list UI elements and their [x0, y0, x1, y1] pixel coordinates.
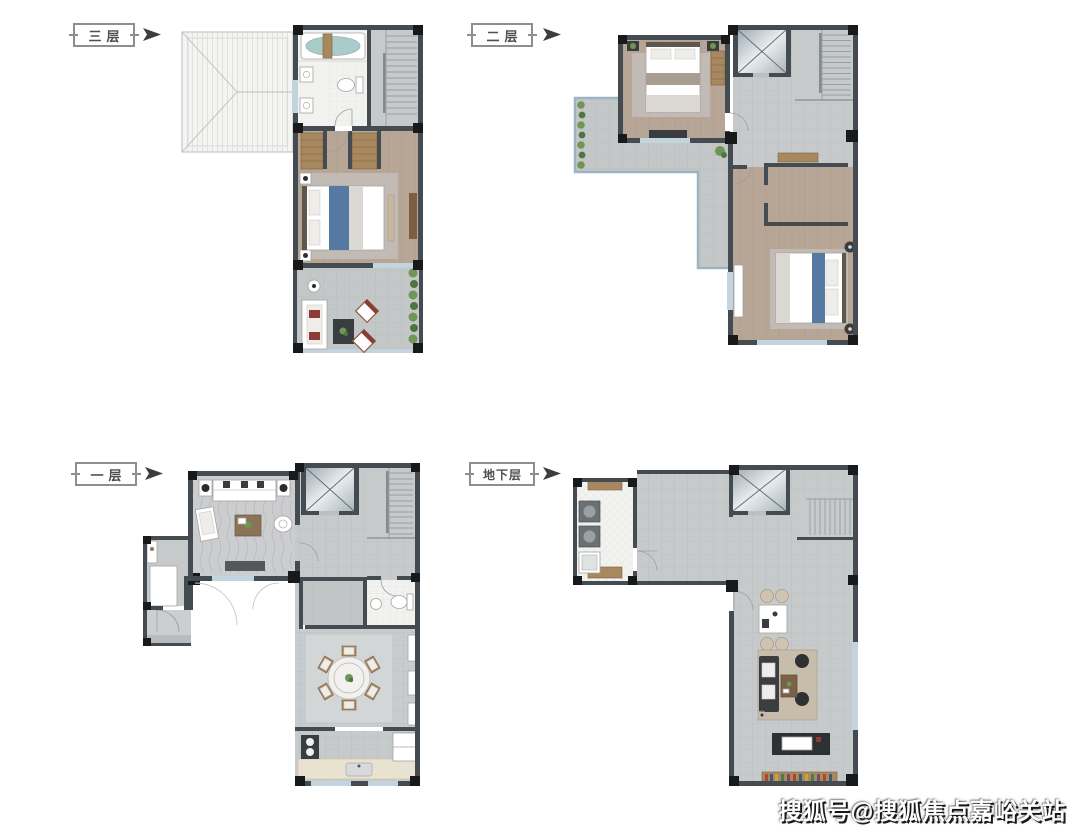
- dryer: [579, 526, 600, 547]
- kitchen-sink: [346, 763, 372, 776]
- ottoman: [274, 516, 292, 532]
- label-tick-right: [528, 34, 537, 36]
- bathtub: [301, 33, 365, 59]
- label-tick-left: [465, 473, 474, 475]
- floor-label-3: 三层: [73, 23, 135, 47]
- arrow-icon: [543, 467, 561, 480]
- label-tick-right: [530, 473, 539, 475]
- coffee-table: [333, 319, 354, 344]
- floor-label-2: 二层: [471, 23, 533, 47]
- label-tick-right: [132, 473, 141, 475]
- terrace: [293, 268, 423, 353]
- bedroom: [298, 131, 418, 263]
- door-swing: [195, 583, 237, 625]
- floorplan-sheet: 三层: [0, 0, 1080, 831]
- stove: [301, 735, 319, 759]
- staircase: [371, 30, 418, 126]
- kitchen: [295, 731, 420, 781]
- utility-sink: [579, 552, 600, 573]
- sofa: [199, 480, 290, 501]
- elevator: [301, 468, 359, 515]
- hall-dresser: [778, 153, 818, 162]
- arrow-icon: [143, 28, 161, 41]
- label-tick-left: [69, 34, 78, 36]
- staircase: [367, 468, 415, 538]
- tv-console: [225, 561, 265, 571]
- bed: [302, 186, 394, 250]
- watermark: 搜狐号@搜狐焦点嘉峪关站: [779, 792, 1066, 826]
- floorplan-drawing-2: [570, 25, 860, 350]
- floorplan-drawing-1: [143, 463, 423, 790]
- bathroom: [367, 576, 420, 625]
- arrow-icon: [543, 28, 561, 41]
- sink: [371, 599, 382, 610]
- fridge: [393, 733, 417, 761]
- coffee-table: [235, 515, 261, 536]
- roof: [182, 32, 293, 152]
- staircase: [797, 497, 853, 540]
- tv-console: [772, 733, 830, 755]
- ottoman: [795, 654, 809, 668]
- wardrobe: [711, 51, 725, 85]
- staircase: [795, 30, 853, 100]
- floor-label-1: 一层: [75, 462, 137, 486]
- floor-label-text: 一层: [90, 465, 126, 484]
- sofa: [759, 656, 779, 712]
- tv-cabinet: [409, 193, 417, 239]
- dining-room: [295, 629, 420, 727]
- courtyard: [299, 577, 367, 629]
- toilet: [391, 594, 413, 610]
- floor-label-basement: 地下层: [469, 462, 535, 486]
- elevator: [733, 26, 791, 77]
- bedroom-2: [733, 167, 856, 340]
- dining-chair: [342, 646, 356, 656]
- door-swing: [253, 583, 279, 609]
- floor-label-text: 地下层: [483, 466, 522, 483]
- washer: [579, 501, 600, 522]
- living-room: [193, 476, 295, 576]
- toilet: [338, 77, 364, 93]
- floor-label-text: 二层: [486, 26, 522, 45]
- bed: [646, 42, 700, 112]
- label-tick-left: [71, 473, 80, 475]
- dining-table: [328, 657, 370, 699]
- cabinet: [734, 265, 743, 317]
- coffee-table: [781, 675, 797, 697]
- label-tick-left: [467, 34, 476, 36]
- dining-chair: [342, 700, 356, 710]
- floor-label-text: 三层: [88, 26, 124, 45]
- label-tick-right: [130, 34, 139, 36]
- floorplan-drawing-3: [180, 23, 425, 355]
- bed: [776, 253, 846, 323]
- bathroom: [298, 30, 371, 126]
- dresser: [649, 130, 687, 138]
- floorplan-drawing-basement: [570, 463, 860, 790]
